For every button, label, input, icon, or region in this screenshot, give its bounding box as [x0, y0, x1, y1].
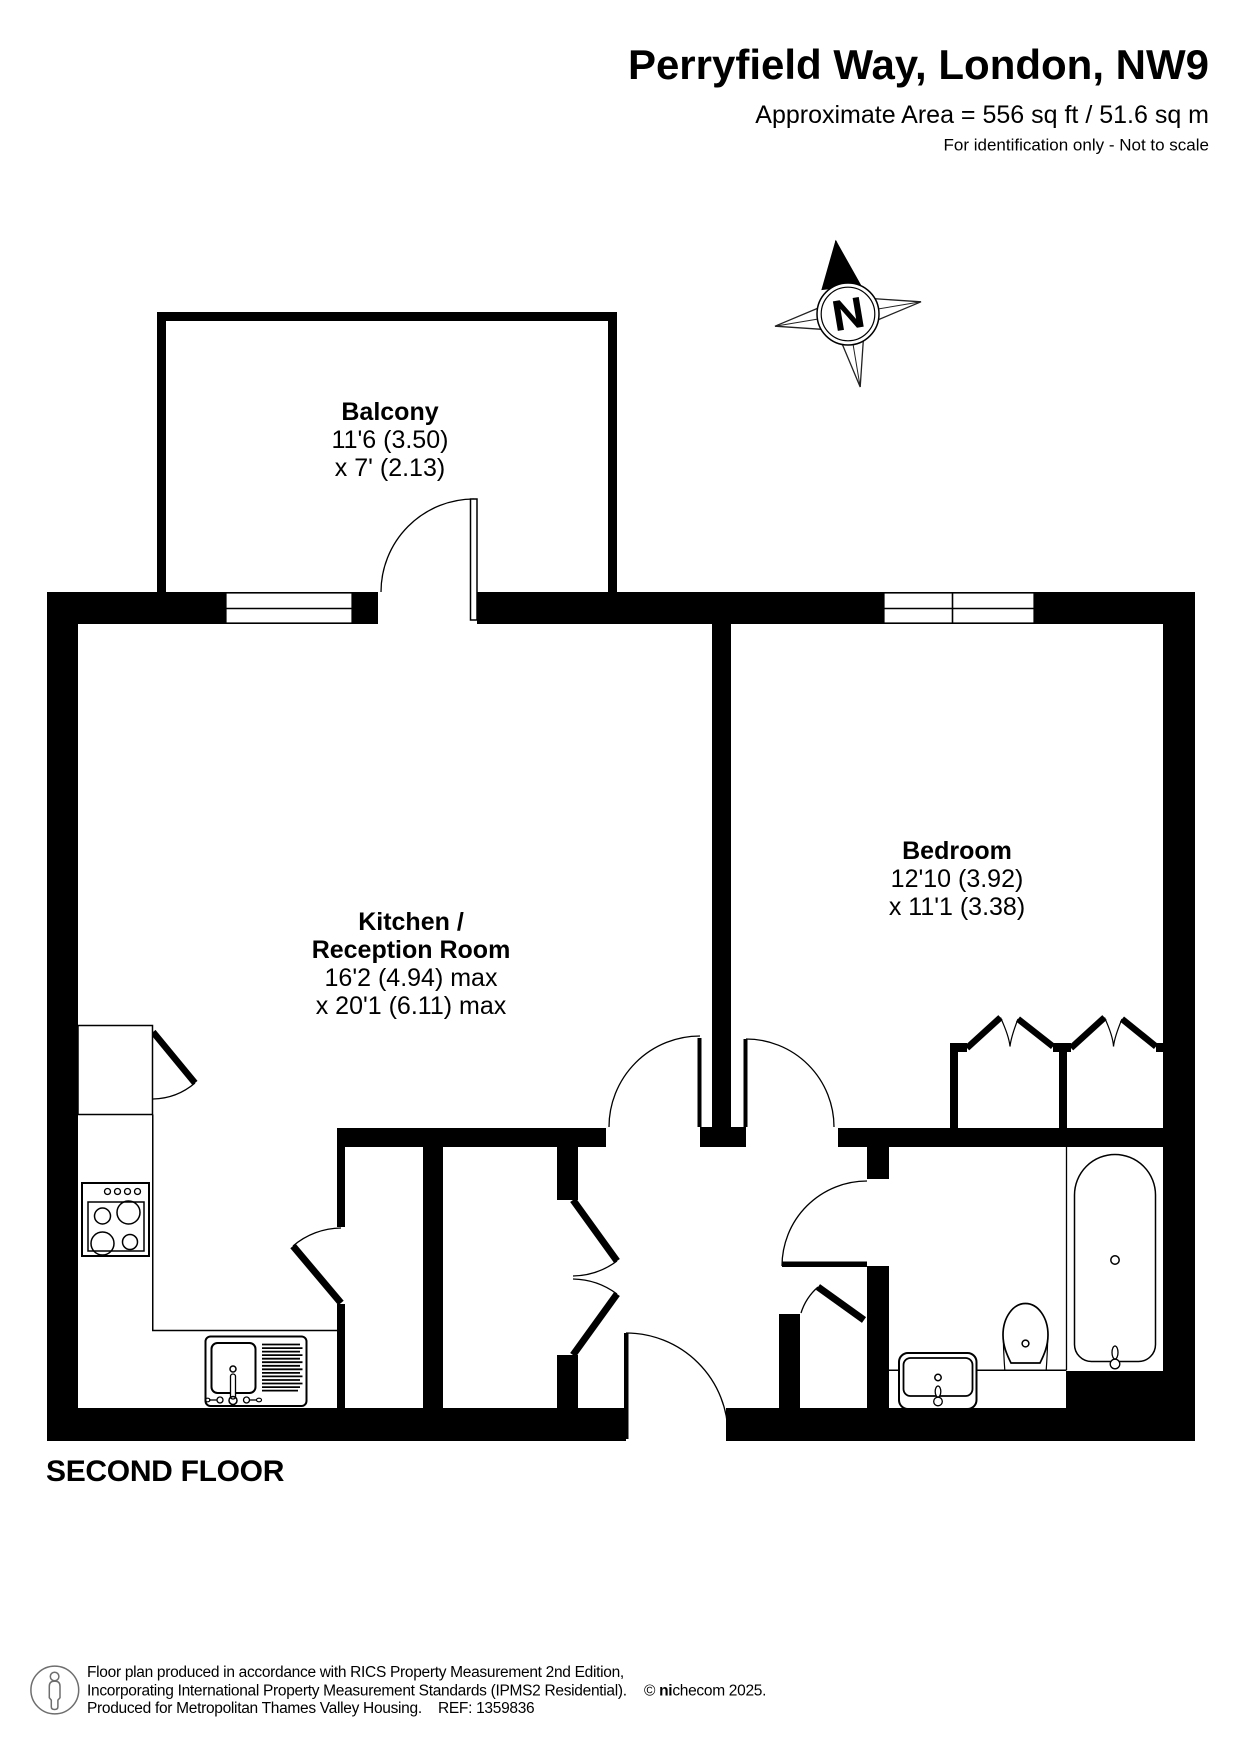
- svg-text:Approximate Area = 556 sq ft /: Approximate Area = 556 sq ft / 51.6 sq m: [755, 101, 1209, 129]
- svg-text:x 7' (2.13): x 7' (2.13): [335, 454, 445, 482]
- svg-text:x 11'1 (3.38): x 11'1 (3.38): [889, 893, 1025, 921]
- svg-text:SECOND FLOOR: SECOND FLOOR: [46, 1455, 285, 1488]
- svg-text:Reception Room: Reception Room: [312, 936, 511, 964]
- svg-text:x 20'1 (6.11) max: x 20'1 (6.11) max: [316, 992, 507, 1020]
- svg-text:© nichecom 2025.: © nichecom 2025.: [644, 1683, 766, 1700]
- svg-text:REF: 1359836: REF: 1359836: [438, 1700, 534, 1717]
- svg-text:Incorporating International Pr: Incorporating International Property Mea…: [87, 1683, 627, 1700]
- svg-text:For identification only - Not: For identification only - Not to scale: [943, 136, 1209, 155]
- svg-text:11'6 (3.50): 11'6 (3.50): [332, 426, 449, 454]
- svg-text:Balcony: Balcony: [341, 398, 438, 426]
- svg-text:16'2 (4.94) max: 16'2 (4.94) max: [325, 964, 498, 992]
- svg-text:Produced for Metropolitan Tham: Produced for Metropolitan Thames Valley …: [87, 1700, 422, 1717]
- svg-text:12'10 (3.92): 12'10 (3.92): [891, 865, 1024, 893]
- svg-text:Kitchen /: Kitchen /: [358, 908, 464, 936]
- svg-text:Bedroom: Bedroom: [902, 837, 1012, 865]
- svg-text:Perryfield Way, London, NW9: Perryfield Way, London, NW9: [628, 41, 1209, 88]
- svg-text:Floor plan produced in accorda: Floor plan produced in accordance with R…: [87, 1664, 624, 1681]
